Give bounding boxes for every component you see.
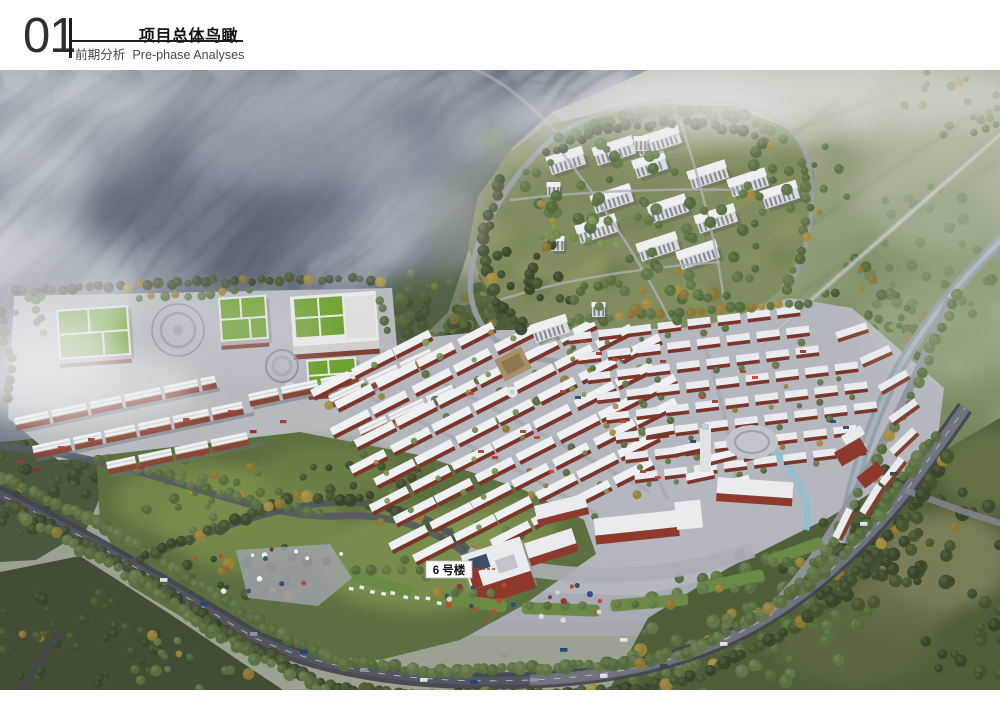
- svg-text:6 号楼: 6 号楼: [433, 563, 466, 577]
